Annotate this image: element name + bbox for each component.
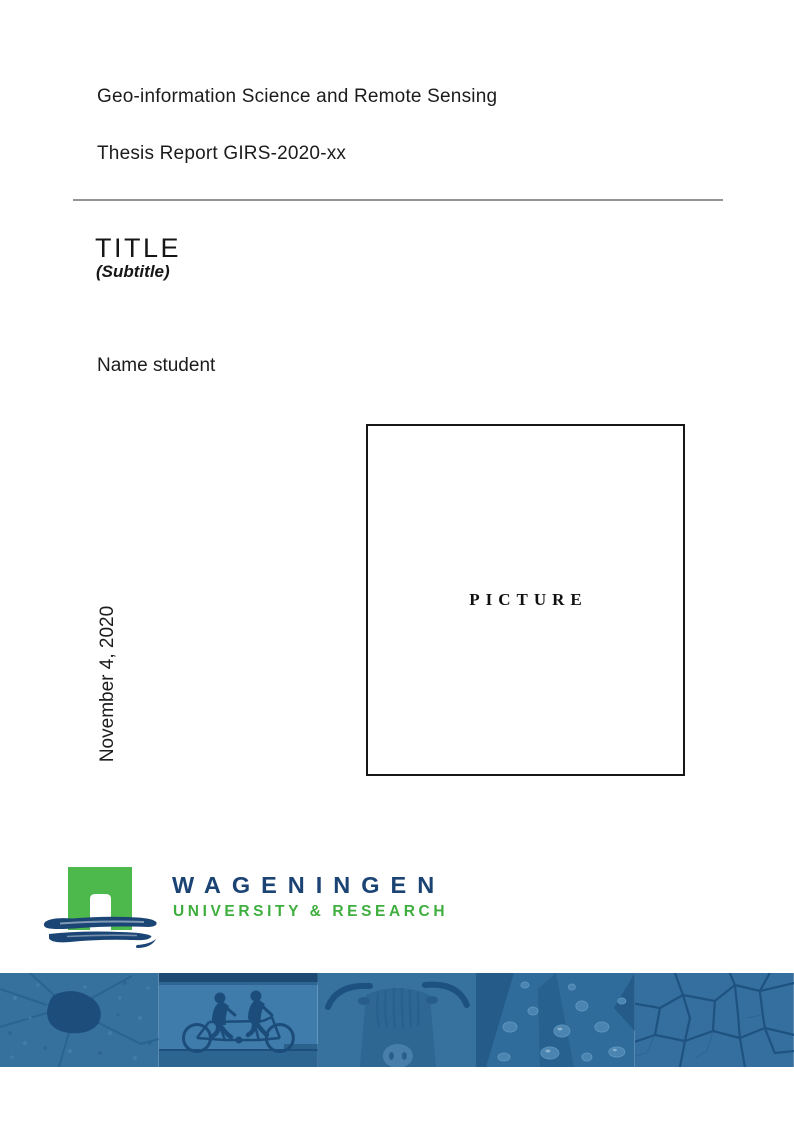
- thesis-subtitle: (Subtitle): [96, 262, 170, 282]
- author-name: Name student: [97, 355, 215, 377]
- wur-tagline: UNIVERSITY & RESEARCH: [173, 903, 448, 921]
- program-name: Geo-information Science and Remote Sensi…: [97, 86, 497, 108]
- wur-wordmark: WAGENINGEN: [172, 872, 445, 899]
- date-vertical-text: November 4, 2020: [97, 606, 119, 762]
- thesis-cover-page: Geo-information Science and Remote Sensi…: [0, 0, 794, 1123]
- header-divider: [73, 199, 723, 201]
- banner-photo-water-droplets-icon: [476, 973, 635, 1067]
- banner-photo-tandem-cyclists-icon: [159, 973, 318, 1067]
- banner-photo-aerial-map-icon: [0, 973, 159, 1067]
- banner-photo-highland-cow-icon: [318, 973, 477, 1067]
- banner-photo-cracked-earth-icon: [635, 973, 794, 1067]
- picture-placeholder-label: PICTURE: [463, 590, 588, 610]
- thesis-title: TITLE: [95, 233, 181, 264]
- picture-placeholder-box: PICTURE: [366, 424, 685, 776]
- photo-banner: [0, 973, 794, 1067]
- wur-logo-icon: [42, 858, 162, 950]
- report-id: Thesis Report GIRS-2020-xx: [97, 143, 346, 165]
